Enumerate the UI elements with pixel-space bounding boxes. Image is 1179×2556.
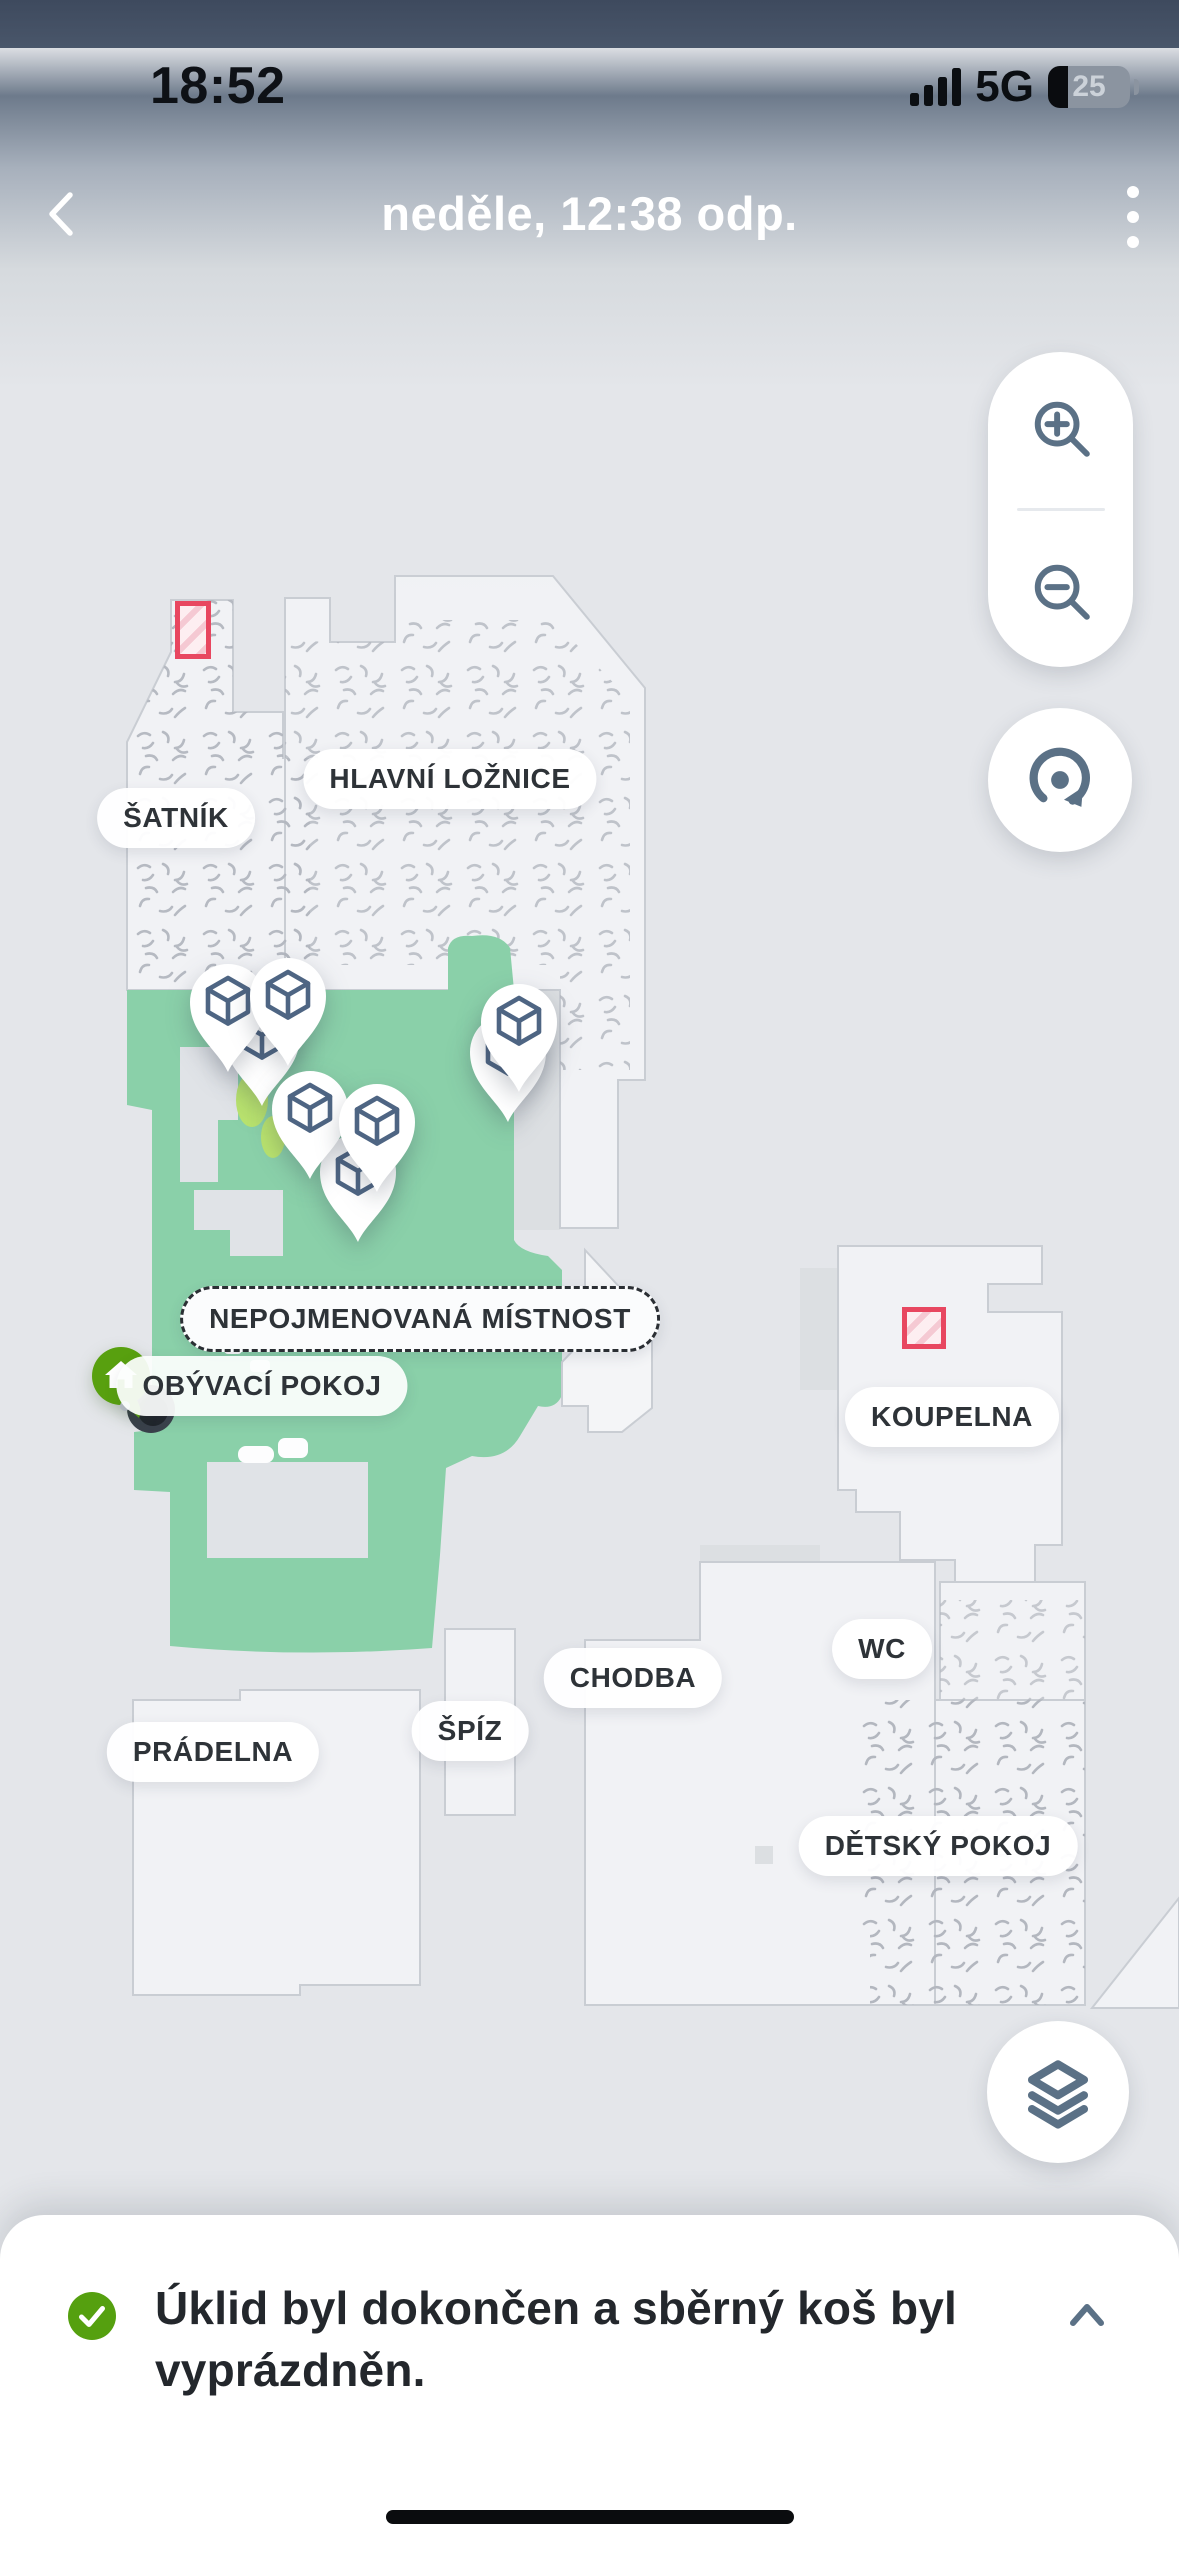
no-go-zone-1 [175,601,211,659]
network-type-label: 5G [975,62,1034,112]
zoom-divider [1017,508,1105,511]
room-label-spiz[interactable]: ŠPÍZ [412,1701,529,1761]
room-label-satnik[interactable]: ŠATNÍK [97,788,255,848]
room-label-obyvaci-pokoj[interactable]: OBÝVACÍ POKOJ [116,1356,407,1416]
robot-vacuum-map-screen: ŠATNÍK HLAVNÍ LOŽNICE NEPOJMENOVANÁ MÍST… [0,0,1179,2556]
no-go-zone-2 [902,1307,946,1349]
room-label-pradelna[interactable]: PRÁDELNA [107,1722,319,1782]
chevron-up-icon[interactable] [1067,2299,1107,2331]
room-label-koupelna[interactable]: KOUPELNA [845,1387,1059,1447]
map-layers-button[interactable] [987,2021,1129,2163]
room-label-wc[interactable]: WC [832,1619,932,1679]
object-pin-2[interactable] [240,948,336,1072]
battery-icon: 25 [1048,66,1130,108]
object-pin-3[interactable] [471,974,567,1098]
zoom-out-button[interactable] [1019,549,1103,633]
status-bottom-sheet: Úklid byl dokončen a sběrný koš byl vypr… [0,2215,1179,2556]
map-layers-icon [1019,2053,1097,2131]
cellular-signal-icon [910,68,961,106]
room-corner-fragment [1092,1898,1179,2008]
nav-bar: neděle, 12:38 odp. [0,170,1179,280]
kebab-menu-button[interactable] [1123,184,1143,250]
battery-nub [1134,79,1139,95]
rotate-map-button[interactable] [988,708,1132,852]
room-label-hlavni-loznice[interactable]: HLAVNÍ LOŽNICE [303,749,596,809]
zoom-controls [988,352,1133,667]
status-bar: 18:52 5G 25 [0,0,1179,130]
status-time: 18:52 [150,56,286,116]
page-title: neděle, 12:38 odp. [0,186,1179,241]
object-pin-6[interactable] [329,1074,425,1198]
zoom-in-button[interactable] [1019,386,1103,470]
zoom-out-icon [1030,560,1092,622]
home-indicator[interactable] [386,2510,794,2524]
room-label-chodba[interactable]: CHODBA [544,1648,722,1708]
success-check-icon [68,2292,116,2340]
room-label-detsky-pokoj[interactable]: DĚTSKÝ POKOJ [799,1816,1078,1876]
rotate-map-icon [1022,742,1098,818]
zoom-in-icon [1030,397,1092,459]
cleaning-status-message: Úklid byl dokončen a sběrný koš byl vypr… [155,2277,1055,2401]
room-label-nepojmenovana-mistnost[interactable]: NEPOJMENOVANÁ MÍSTNOST [180,1286,660,1352]
battery-percent: 25 [1048,66,1130,108]
